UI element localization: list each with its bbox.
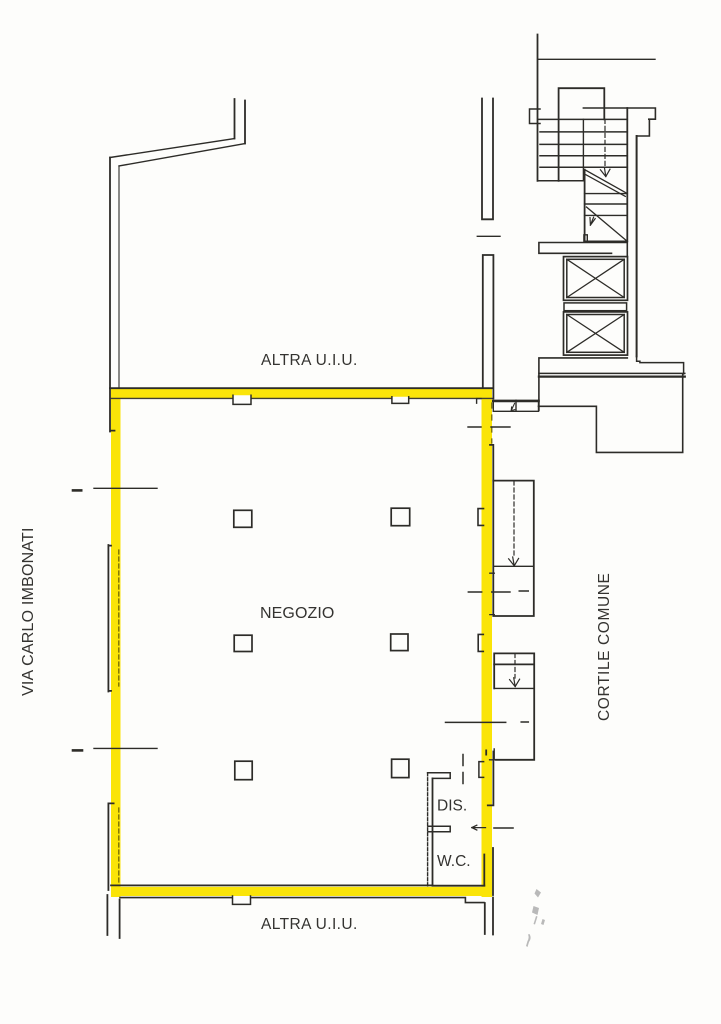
svg-text:DIS.: DIS. — [437, 798, 467, 815]
svg-text:VIA CARLO IMBONATI: VIA CARLO IMBONATI — [20, 527, 37, 696]
svg-text:NEGOZIO: NEGOZIO — [260, 605, 334, 622]
svg-text:CORTILE COMUNE: CORTILE COMUNE — [596, 573, 613, 722]
svg-text:ALTRA U.I.U.: ALTRA U.I.U. — [261, 352, 358, 369]
svg-text:W.C.: W.C. — [437, 853, 471, 870]
svg-text:ALTRA U.I.U.: ALTRA U.I.U. — [261, 916, 358, 933]
